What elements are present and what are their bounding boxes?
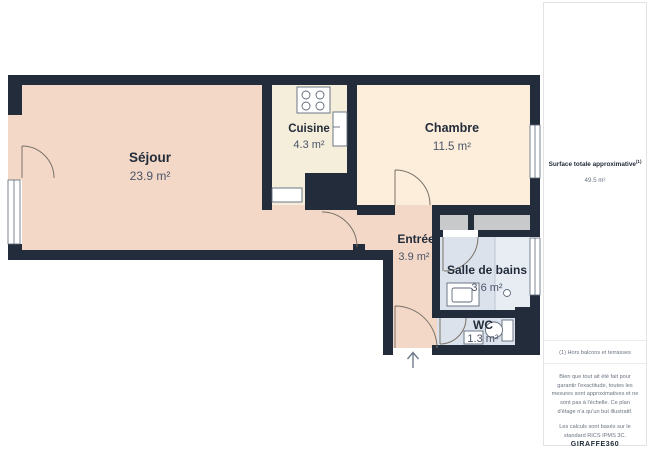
legal-section: Bien que tout ait été fait pour garantir… [544,363,646,445]
area-entree: 3.9 m² [398,251,430,263]
area-wc: 1.3 m² [467,333,499,345]
brand-logo: GIRAFFE360 [571,441,619,448]
room-sejour [22,85,262,250]
brand-name: GIRAFFE [571,441,606,448]
disclaimer-text: Bien que tout ait été fait pour garantir… [551,373,639,416]
label-salle-de-bains: Salle de bains [447,263,527,277]
surface-total-text: Surface totale approximative [549,161,636,168]
closet-left [440,215,468,230]
label-entree: Entrée [397,232,435,246]
brand-suffix: 360 [606,441,619,448]
fridge-icon [333,112,347,146]
floor-plan: Séjour 23.9 m² Cuisine 4.3 m² Chambre 11… [0,0,543,450]
surface-total-label: Surface totale approximative(1) [546,159,645,170]
floorplan-page: Séjour 23.9 m² Cuisine 4.3 m² Chambre 11… [0,0,650,450]
label-sejour: Séjour [129,150,172,165]
standard-text: Les calculs sont basés sur le standard R… [551,423,639,440]
surface-total-footnote-marker: (1) [636,159,642,164]
label-chambre: Chambre [425,121,479,135]
window-sejour-icon [8,180,20,244]
counter-icon [272,188,302,202]
label-cuisine: Cuisine [288,123,330,135]
surface-total-value: 49.5 m² [585,177,606,184]
window-chambre-icon [530,125,540,178]
entrance-arrow-icon [408,353,419,369]
shower-drain-icon [504,290,511,297]
area-cuisine: 4.3 m² [293,139,325,151]
closet-right [474,215,530,230]
balcony-door-threshold [8,115,22,180]
sidebar-panel: Surface totale approximative(1) 49.5 m² … [543,2,647,446]
window-bathroom-icon [530,238,540,295]
area-chambre: 11.5 m² [433,141,471,153]
area-salle-de-bains: 3.6 m² [471,282,503,294]
footnote-text: (1) Hors balcons et terrasses [544,340,646,364]
stove-icon [297,87,330,113]
label-wc: WC [473,318,493,332]
area-sejour: 23.9 m² [130,169,171,183]
surface-total-section: Surface totale approximative(1) 49.5 m² [544,3,646,340]
